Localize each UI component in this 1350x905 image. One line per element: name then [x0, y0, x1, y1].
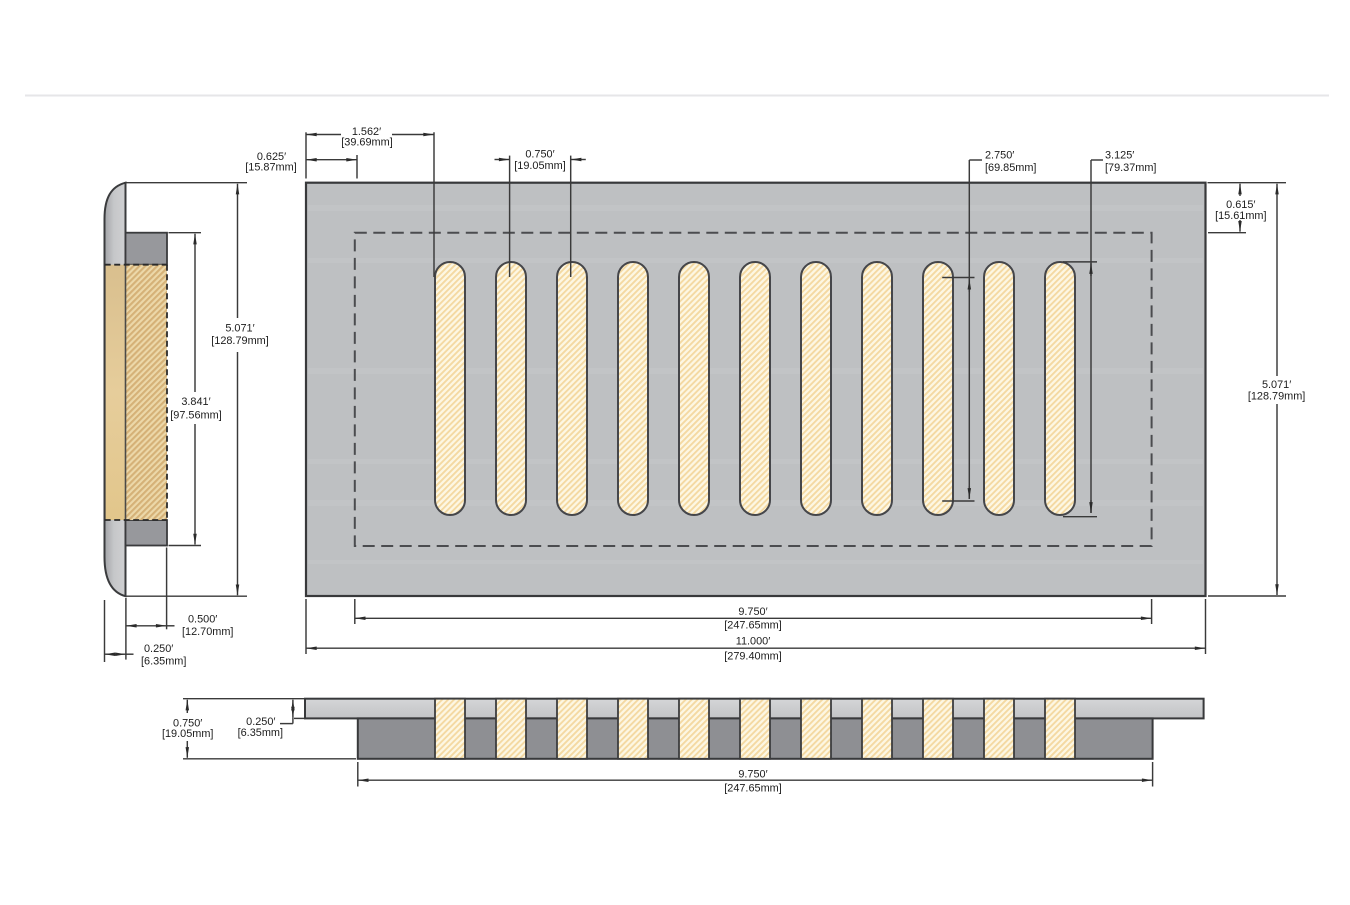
svg-text:0.500′: 0.500′: [188, 614, 217, 626]
svg-text:2.750′: 2.750′: [985, 150, 1014, 162]
svg-text:9.750′: 9.750′: [738, 606, 767, 618]
svg-text:[6.35mm]: [6.35mm]: [238, 727, 283, 739]
svg-text:[6.35mm]: [6.35mm]: [141, 655, 186, 667]
svg-text:5.071′: 5.071′: [225, 323, 254, 335]
svg-text:[79.37mm]: [79.37mm]: [1105, 162, 1156, 174]
svg-text:11.000′: 11.000′: [736, 636, 771, 648]
svg-text:[15.61mm]: [15.61mm]: [1215, 210, 1266, 222]
svg-text:[279.40mm]: [279.40mm]: [724, 651, 782, 663]
svg-text:5.071′: 5.071′: [1262, 379, 1291, 391]
svg-text:[15.87mm]: [15.87mm]: [245, 162, 296, 174]
svg-text:[128.79mm]: [128.79mm]: [1248, 391, 1306, 403]
svg-text:[97.56mm]: [97.56mm]: [170, 410, 221, 422]
svg-text:[247.65mm]: [247.65mm]: [724, 783, 782, 795]
svg-text:3.841′: 3.841′: [181, 396, 210, 408]
svg-text:[247.65mm]: [247.65mm]: [724, 620, 782, 632]
svg-text:0.250′: 0.250′: [144, 643, 173, 655]
svg-text:[12.70mm]: [12.70mm]: [182, 626, 233, 638]
svg-text:[19.05mm]: [19.05mm]: [162, 728, 213, 740]
svg-text:3.125′: 3.125′: [1105, 150, 1134, 162]
svg-text:[39.69mm]: [39.69mm]: [341, 137, 392, 149]
svg-text:9.750′: 9.750′: [738, 768, 767, 780]
svg-text:[69.85mm]: [69.85mm]: [985, 162, 1036, 174]
svg-text:[19.05mm]: [19.05mm]: [514, 160, 565, 172]
svg-text:0.750′: 0.750′: [525, 149, 554, 161]
svg-text:[128.79mm]: [128.79mm]: [211, 335, 269, 347]
